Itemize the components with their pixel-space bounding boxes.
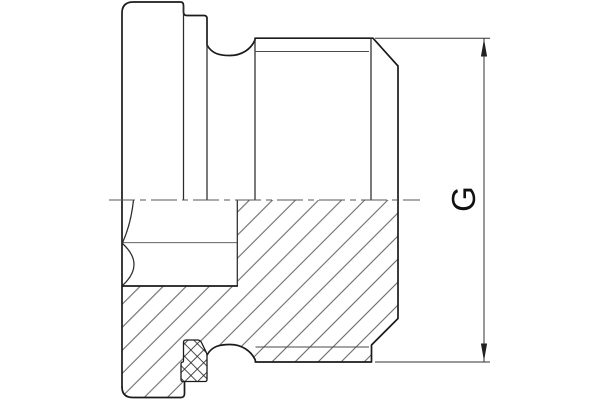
section-hatch-region xyxy=(122,200,398,398)
drawing-svg xyxy=(0,0,600,400)
technical-drawing-canvas: G xyxy=(0,0,600,400)
dimension-arrow-bottom xyxy=(481,344,487,362)
seal-ring xyxy=(181,340,207,382)
thread-dimension-label: G xyxy=(448,181,480,217)
dimension-arrow-top xyxy=(481,39,487,57)
